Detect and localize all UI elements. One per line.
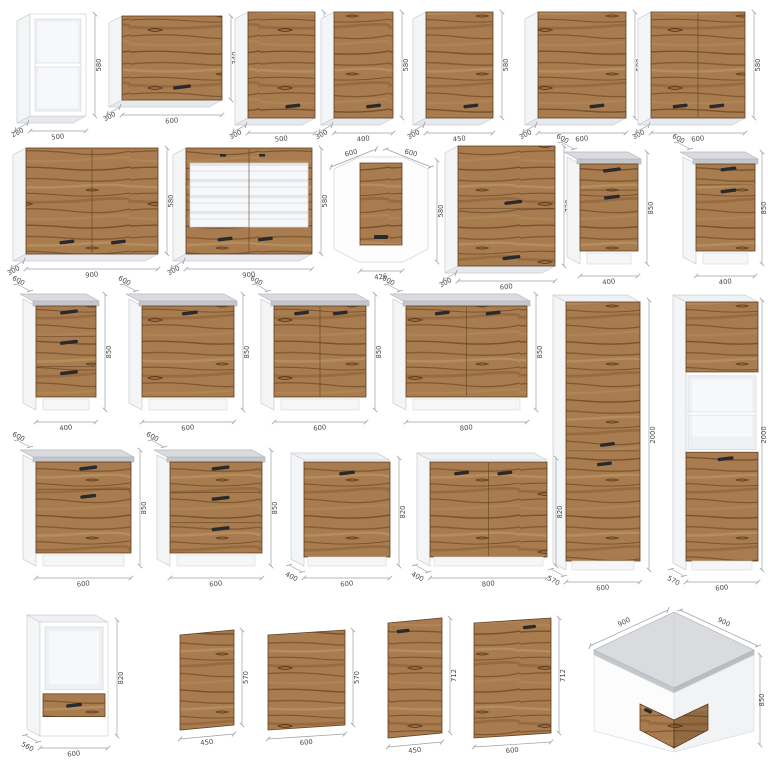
dim-label: 600: [715, 583, 729, 592]
dim-label: 400: [602, 277, 616, 286]
dim-label: 450: [452, 134, 466, 143]
dim-label: 850: [140, 502, 148, 515]
dim-label: 2000: [760, 426, 768, 443]
dim-label: 850: [271, 502, 279, 515]
dim-label: 400: [718, 277, 732, 286]
dim-label: 400: [356, 134, 370, 143]
dim-label: 600: [691, 134, 705, 143]
dim-label: 600: [209, 579, 223, 588]
dim-label: 850: [536, 346, 544, 359]
dim-label: 600: [505, 746, 519, 755]
cabinet-base-800-2door: 800850600: [381, 274, 544, 433]
dim-label: 500: [51, 132, 65, 141]
dim-label: 850: [243, 346, 251, 359]
dim-label: 600: [313, 423, 327, 432]
dim-label: 450: [200, 738, 214, 747]
dim-label: 712: [559, 669, 567, 682]
dim-label: 900: [85, 270, 99, 279]
dim-label: 580: [402, 59, 410, 72]
dim-label: 850: [105, 346, 113, 359]
dim-label: 600: [340, 579, 354, 588]
dim-label: 600: [499, 282, 513, 291]
dim-label: 800: [481, 579, 495, 588]
dim-label: 570: [353, 671, 361, 684]
dim-label: 820: [117, 672, 125, 685]
dim-label: 600: [596, 583, 610, 592]
dim-label: 850: [647, 202, 655, 215]
dim-label: 800: [459, 423, 473, 432]
dim-label: 820: [399, 506, 407, 519]
kitchen-cabinet-catalog: 5005802806003403005005803004005803004505…: [0, 0, 768, 768]
dim-label: 850: [758, 694, 766, 707]
cabinet-tall-600: 6002000570: [546, 295, 657, 593]
dim-label: 500: [274, 134, 288, 143]
dim-label: 850: [375, 346, 383, 359]
dim-label: 600: [67, 749, 81, 758]
dim-label: 580: [754, 59, 762, 72]
dim-label: 580: [321, 195, 329, 208]
dim-label: 450: [408, 746, 422, 755]
cabinet-tall-oven-600: 6002000570: [666, 295, 768, 593]
dim-label: 570: [242, 671, 250, 684]
catalog-canvas: 5005802806003403005005803004005803004505…: [0, 0, 768, 768]
dim-label: 712: [450, 669, 458, 682]
dim-label: 400: [59, 423, 73, 432]
dim-label: 600: [575, 134, 589, 143]
dim-label: 580: [502, 59, 510, 72]
dim-label: 850: [760, 202, 768, 215]
dim-label: 580: [437, 205, 445, 218]
dim-label: 580: [95, 59, 103, 72]
dim-label: 600: [165, 116, 179, 125]
dim-label: 2000: [649, 426, 657, 443]
dim-label: 600: [76, 579, 90, 588]
dim-label: 600: [299, 738, 313, 747]
dim-label: 600: [181, 423, 195, 432]
dim-label: 820: [556, 506, 564, 519]
